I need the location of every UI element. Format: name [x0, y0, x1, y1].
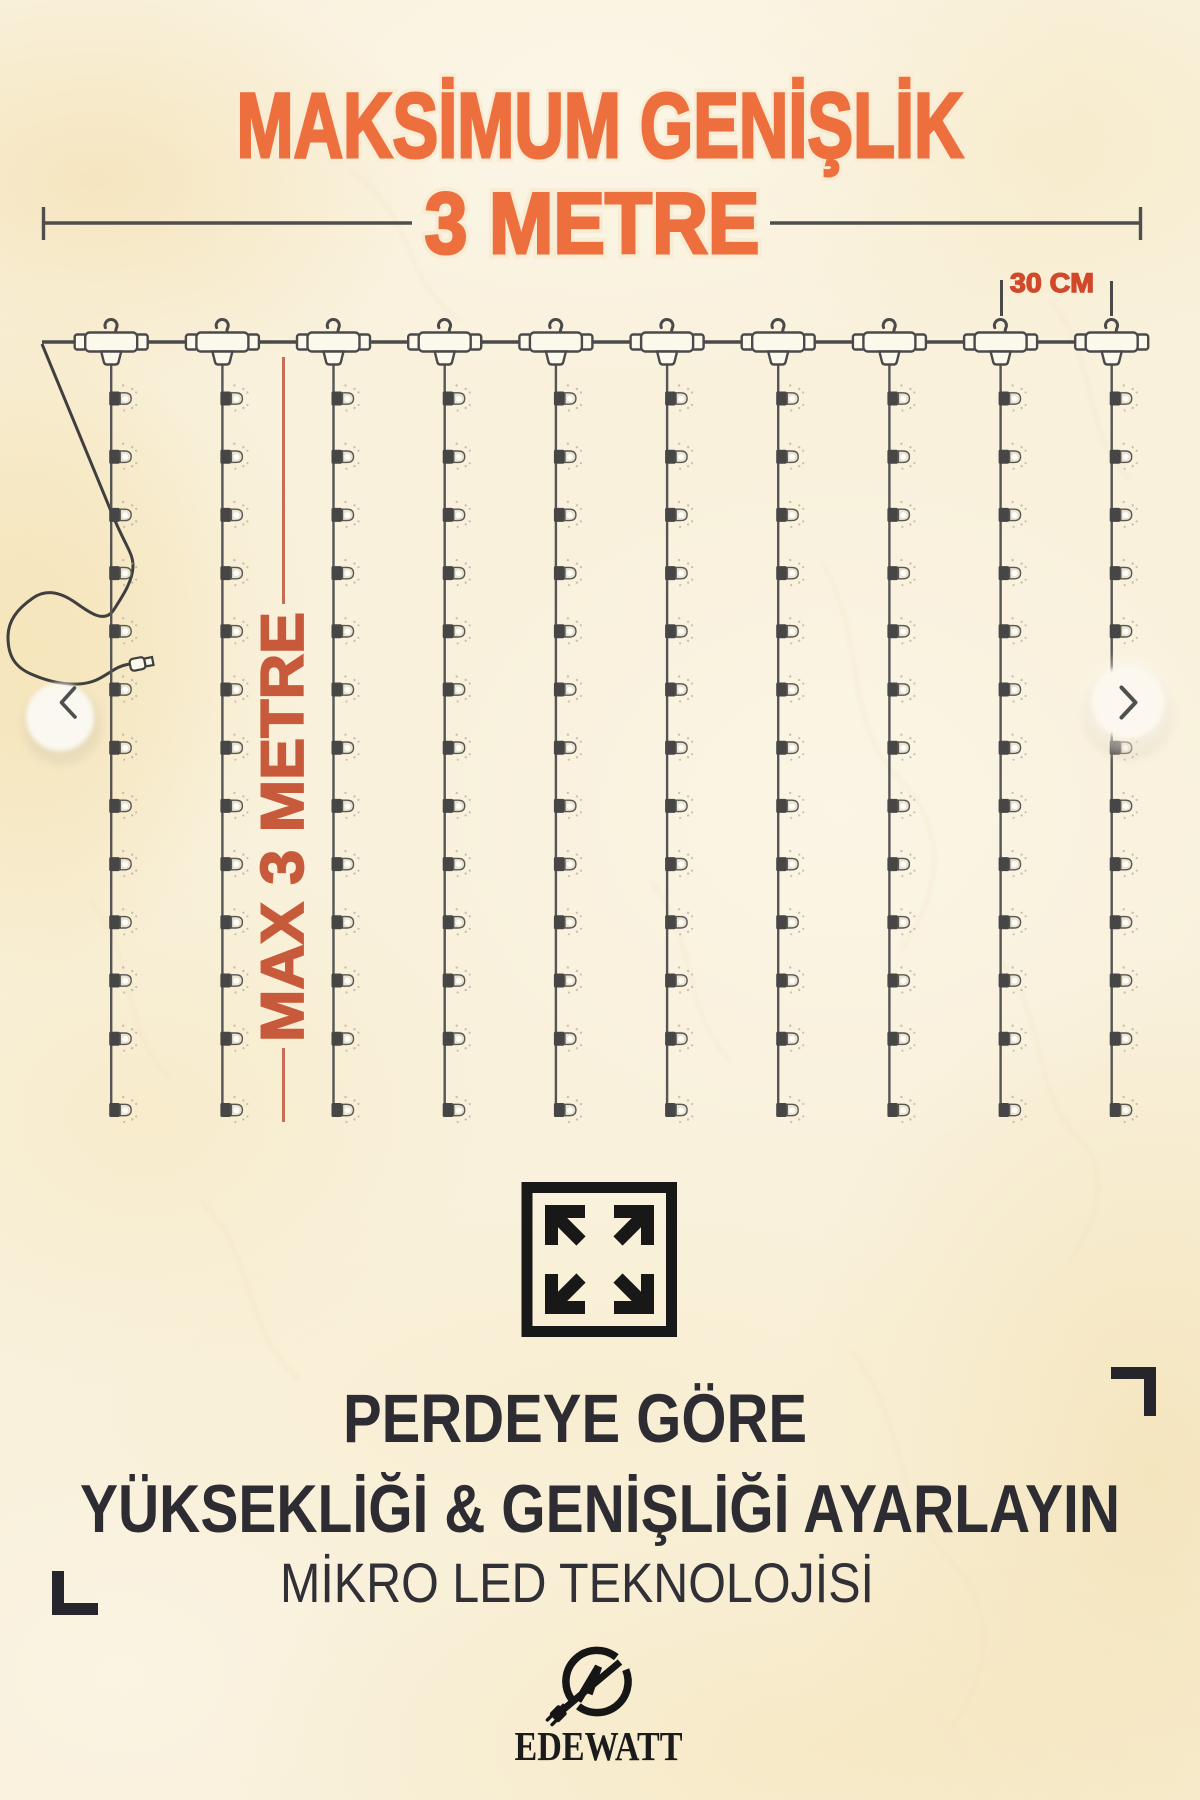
svg-text:YÜKSEKLİĞİ & GENİŞLİĞİ AYARLAY: YÜKSEKLİĞİ & GENİŞLİĞİ AYARLAYIN	[80, 1471, 1120, 1547]
svg-text:30 CM: 30 CM	[1010, 268, 1094, 298]
svg-text:PERDEYE GÖRE: PERDEYE GÖRE	[343, 1380, 807, 1457]
svg-text:3 METRE: 3 METRE	[425, 176, 760, 272]
svg-text:MİKRO LED TEKNOLOJİSİ: MİKRO LED TEKNOLOJİSİ	[280, 1551, 874, 1614]
svg-text:MAKSİMUM GENİŞLİK: MAKSİMUM GENİŞLİK	[237, 75, 964, 177]
svg-text:MAX 3 METRE: MAX 3 METRE	[249, 612, 316, 1042]
svg-text:EDEWATT: EDEWATT	[515, 1723, 683, 1769]
